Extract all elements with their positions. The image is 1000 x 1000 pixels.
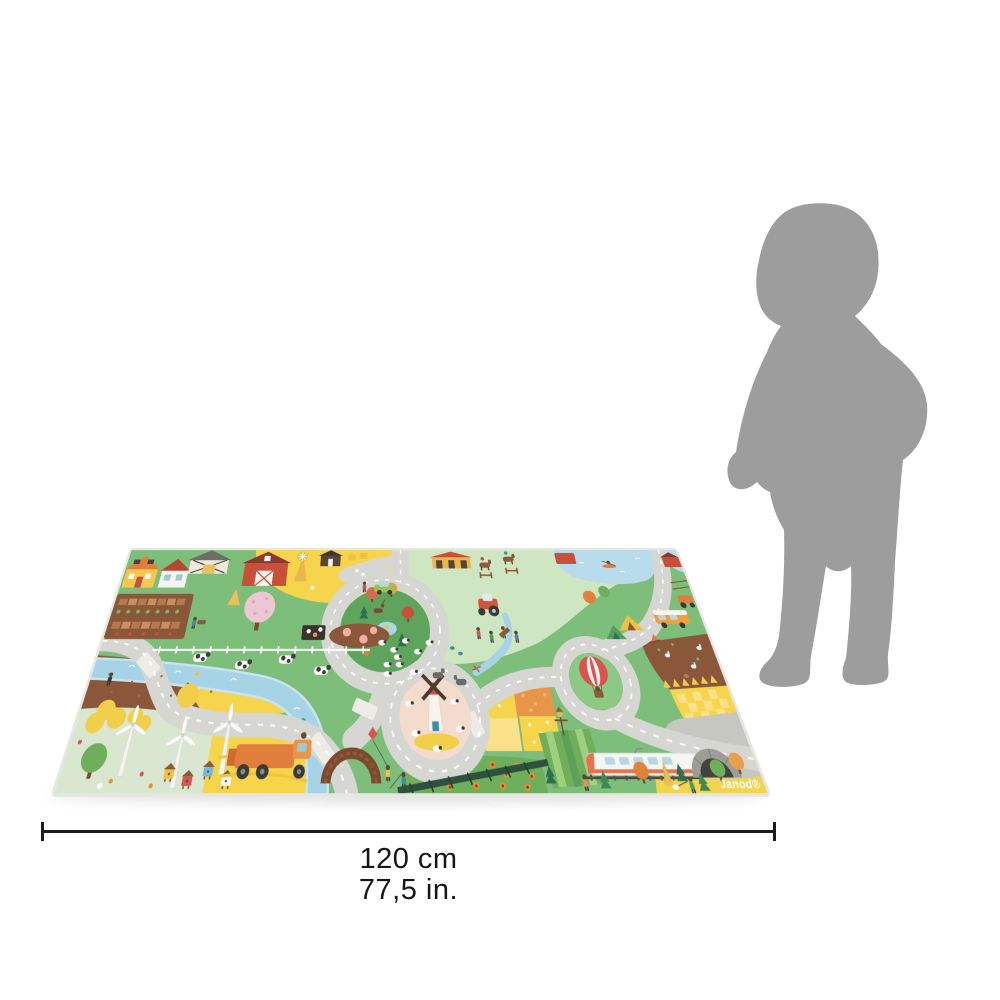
rabbit-hutch: [301, 625, 325, 640]
play-mat: Janod®: [50, 548, 772, 797]
child-silhouette: [720, 195, 945, 700]
dimension-cap-left: [41, 822, 44, 841]
sign-board: [360, 553, 368, 559]
janod-logo: Janod®: [717, 776, 763, 792]
dimension-cap-right: [773, 822, 776, 841]
dimension-line: [41, 830, 776, 833]
toddler-silhouette-shape: [727, 203, 927, 687]
dimension-width-cm: 120 cm: [41, 843, 776, 876]
sign-board: [348, 554, 356, 560]
mat-illustration: Janod®: [54, 550, 767, 793]
product-image-canvas: Janod® 120 cm 77,5 in.: [0, 0, 1000, 1000]
fishing-deck: [554, 553, 576, 564]
pond-figure: [385, 625, 389, 629]
dimension-width-in: 77,5 in.: [41, 874, 776, 907]
